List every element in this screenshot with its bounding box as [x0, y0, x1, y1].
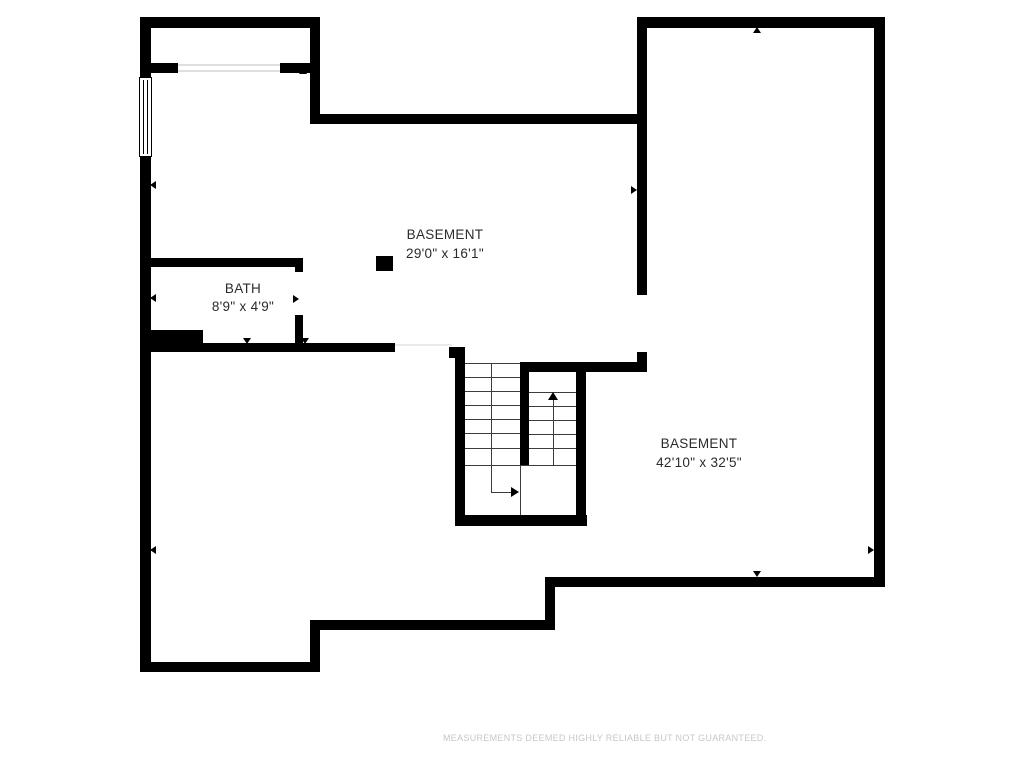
- room-name: BATH: [163, 280, 323, 298]
- stair-tread: [465, 405, 520, 406]
- room-dimensions: 29'0" x 16'1": [345, 244, 545, 263]
- wall-bottom-right: [545, 577, 885, 587]
- stair-arrow-up-icon: [548, 392, 558, 400]
- wall-top-left: [140, 17, 320, 28]
- wall-divider: [310, 114, 647, 124]
- opening-line-top: [178, 64, 280, 66]
- measure-arrow-icon: [753, 27, 761, 33]
- measure-arrow-icon: [150, 181, 156, 189]
- stair-tread: [465, 433, 520, 434]
- stair-tread: [465, 448, 520, 449]
- wall-stair-interior: [520, 362, 529, 465]
- disclaimer: MEASUREMENTS DEEMED HIGHLY RELIABLE BUT …: [443, 733, 743, 743]
- room-name: BASEMENT: [345, 225, 545, 244]
- wall-top-right: [637, 17, 885, 28]
- window-pane-line: [147, 80, 148, 154]
- wall-stair-right: [576, 362, 586, 526]
- opening-line-mid: [395, 344, 452, 346]
- room-label-basement-main: BASEMENT 42'10" x 32'5": [599, 434, 799, 472]
- wall-bottom-middle: [310, 620, 555, 630]
- measure-arrow-icon: [150, 546, 156, 554]
- room-label-bath: BATH 8'9" x 4'9": [163, 280, 323, 316]
- measure-arrow-icon: [753, 571, 761, 577]
- stair-tread: [465, 363, 520, 364]
- wall-entry-left: [140, 63, 178, 73]
- measure-arrow-icon: [150, 294, 156, 302]
- wall-left-lower: [140, 156, 151, 672]
- opening-line-bottom: [178, 70, 280, 72]
- stair-tread: [465, 377, 520, 378]
- wall-stair-left: [455, 347, 465, 526]
- wall-upper-room-right: [310, 17, 320, 124]
- measure-arrow-icon: [243, 338, 251, 344]
- wall-bath-top: [140, 258, 303, 267]
- floor-plan-page: BASEMENT 29'0" x 16'1" BATH 8'9" x 4'9" …: [0, 0, 1024, 768]
- wall-right: [874, 17, 885, 587]
- wall-bottom-left: [140, 662, 320, 672]
- stair-landing-divider: [520, 465, 521, 515]
- stair-arrow-right-icon: [511, 487, 519, 497]
- measure-arrow-icon: [244, 261, 252, 267]
- measure-arrow-icon: [299, 68, 307, 74]
- stair-tread: [465, 391, 520, 392]
- wall-interior-right: [637, 17, 647, 295]
- room-dimensions: 8'9" x 4'9": [163, 298, 323, 316]
- stair-direction-line: [553, 400, 554, 465]
- measure-arrow-icon: [631, 186, 637, 194]
- stair-direction-line: [491, 492, 511, 493]
- window: [139, 77, 152, 157]
- room-dimensions: 42'10" x 32'5": [599, 453, 799, 472]
- stair-tread: [465, 419, 520, 420]
- wall-stair-bottom: [455, 515, 587, 526]
- wall-bath-right-upper: [295, 258, 303, 272]
- wall-mid: [140, 343, 395, 352]
- stair-direction-line: [491, 363, 492, 492]
- room-name: BASEMENT: [599, 434, 799, 453]
- window-pane-line: [143, 80, 144, 154]
- measure-arrow-icon: [301, 338, 309, 344]
- room-label-basement-upper: BASEMENT 29'0" x 16'1": [345, 225, 545, 263]
- measure-arrow-icon: [868, 546, 874, 554]
